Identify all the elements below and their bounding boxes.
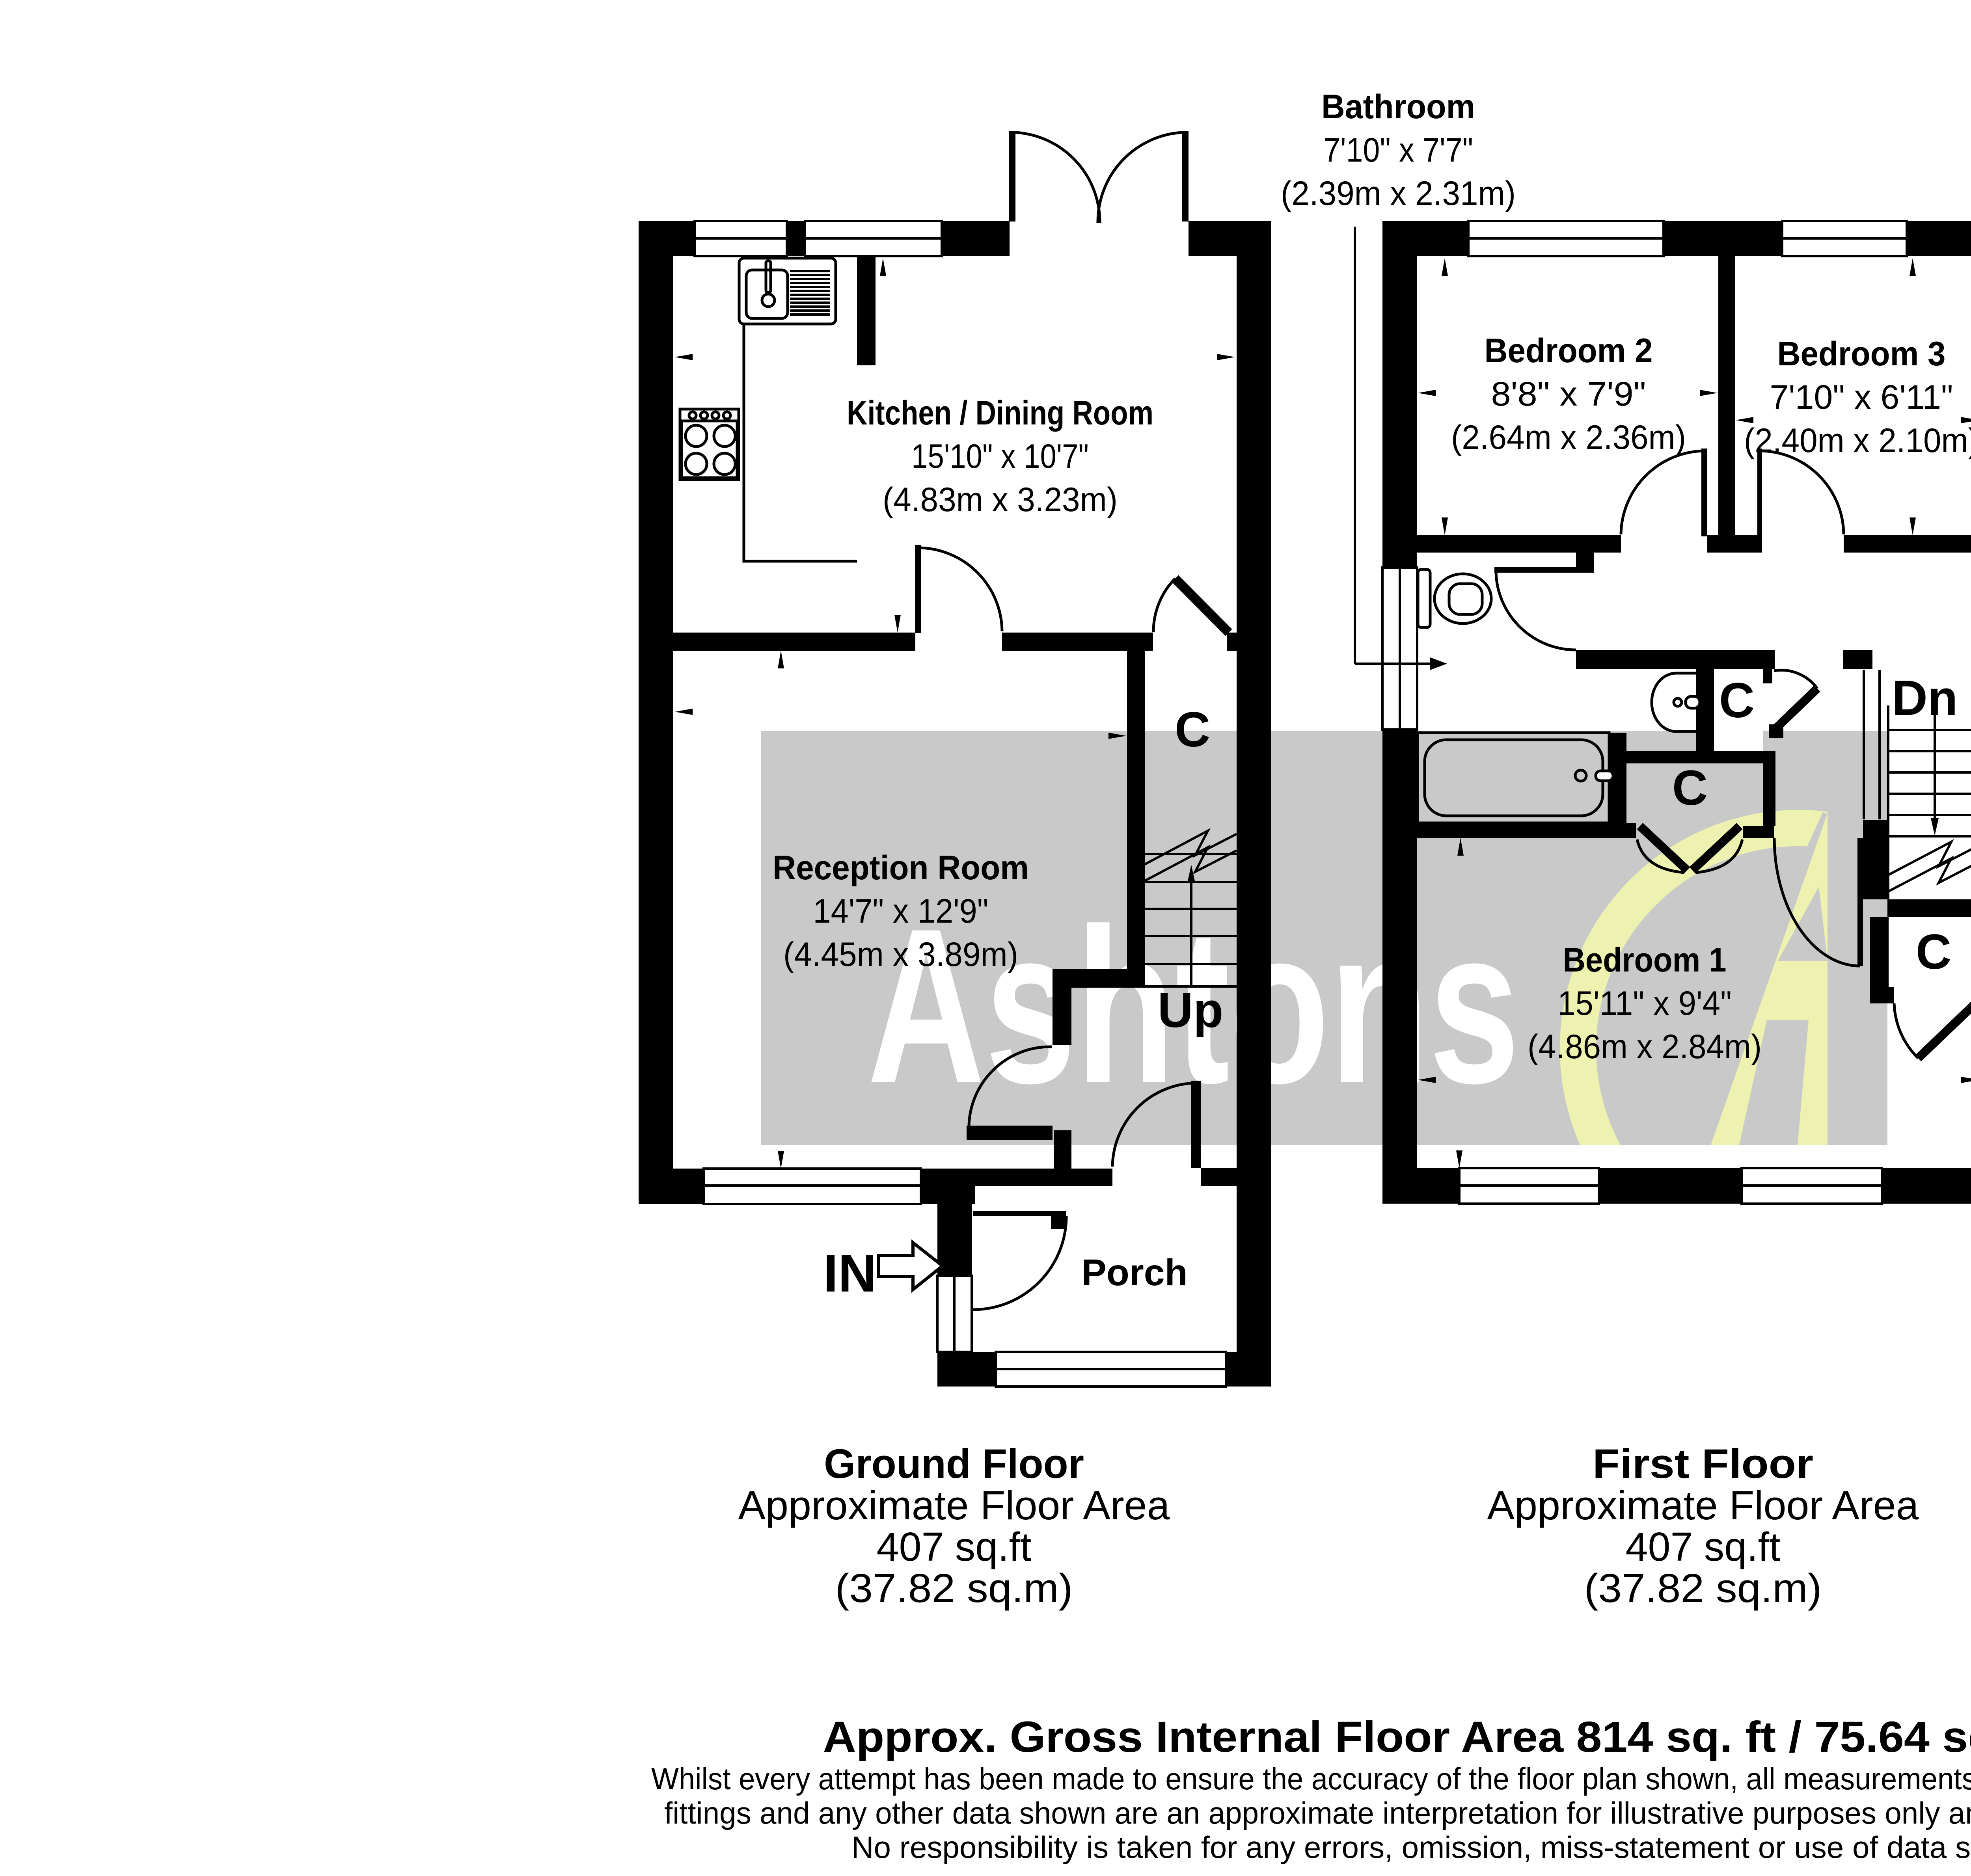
svg-text:(2.40m x 2.10m): (2.40m x 2.10m) — [1744, 422, 1971, 460]
svg-text:C: C — [1719, 673, 1755, 728]
svg-text:Approximate Floor Area: Approximate Floor Area — [738, 1483, 1170, 1528]
svg-text:(4.83m x 3.23m): (4.83m x 3.23m) — [883, 481, 1118, 519]
svg-text:Kitchen / Dining Room: Kitchen / Dining Room — [847, 394, 1153, 432]
svg-text:Bathroom: Bathroom — [1321, 88, 1475, 126]
svg-text:Bedroom 3: Bedroom 3 — [1777, 335, 1946, 373]
svg-text:15'10" x 10'7": 15'10" x 10'7" — [911, 437, 1089, 475]
svg-text:fittings and any other data sh: fittings and any other data shown are an… — [664, 1796, 1971, 1830]
svg-text:Approx. Gross Internal Floor A: Approx. Gross Internal Floor Area 814 sq… — [823, 1713, 1971, 1761]
svg-text:Approximate Floor Area: Approximate Floor Area — [1487, 1483, 1919, 1528]
svg-text:(2.39m x 2.31m): (2.39m x 2.31m) — [1281, 175, 1516, 212]
svg-text:Bedroom 2: Bedroom 2 — [1485, 332, 1653, 370]
svg-text:First Floor: First Floor — [1593, 1441, 1813, 1487]
svg-text:C: C — [1672, 761, 1708, 815]
svg-text:14'7" x 12'9": 14'7" x 12'9" — [813, 892, 989, 930]
svg-text:7'10" x 7'7": 7'10" x 7'7" — [1323, 131, 1473, 169]
svg-text:No responsibility is taken for: No responsibility is taken for any error… — [851, 1830, 1971, 1865]
svg-text:(2.64m x 2.36m): (2.64m x 2.36m) — [1451, 419, 1686, 456]
svg-text:C: C — [1916, 925, 1951, 979]
svg-text:IN: IN — [823, 1243, 877, 1303]
svg-text:407 sq.ft: 407 sq.ft — [877, 1524, 1032, 1569]
svg-text:Whilst every attempt has been: Whilst every attempt has been made to en… — [651, 1761, 1971, 1796]
svg-text:Bedroom 1: Bedroom 1 — [1563, 941, 1727, 979]
svg-text:(37.82 sq.m): (37.82 sq.m) — [1584, 1565, 1822, 1611]
svg-text:Reception Room: Reception Room — [773, 849, 1029, 887]
svg-text:(4.45m x 3.89m): (4.45m x 3.89m) — [783, 936, 1018, 973]
svg-text:Ground Floor: Ground Floor — [824, 1441, 1084, 1487]
svg-text:15'11" x 9'4": 15'11" x 9'4" — [1557, 985, 1732, 1022]
svg-text:8'8" x 7'9": 8'8" x 7'9" — [1491, 375, 1646, 413]
svg-text:Porch: Porch — [1081, 1252, 1187, 1293]
svg-text:7'10" x 6'11": 7'10" x 6'11" — [1770, 378, 1953, 416]
svg-text:407 sq.ft: 407 sq.ft — [1626, 1524, 1781, 1569]
svg-text:(4.86m x 2.84m): (4.86m x 2.84m) — [1528, 1028, 1762, 1066]
svg-text:C: C — [1175, 702, 1210, 757]
svg-text:Up: Up — [1158, 983, 1224, 1038]
svg-text:(37.82 sq.m): (37.82 sq.m) — [835, 1565, 1073, 1611]
svg-text:Dn: Dn — [1892, 671, 1958, 726]
